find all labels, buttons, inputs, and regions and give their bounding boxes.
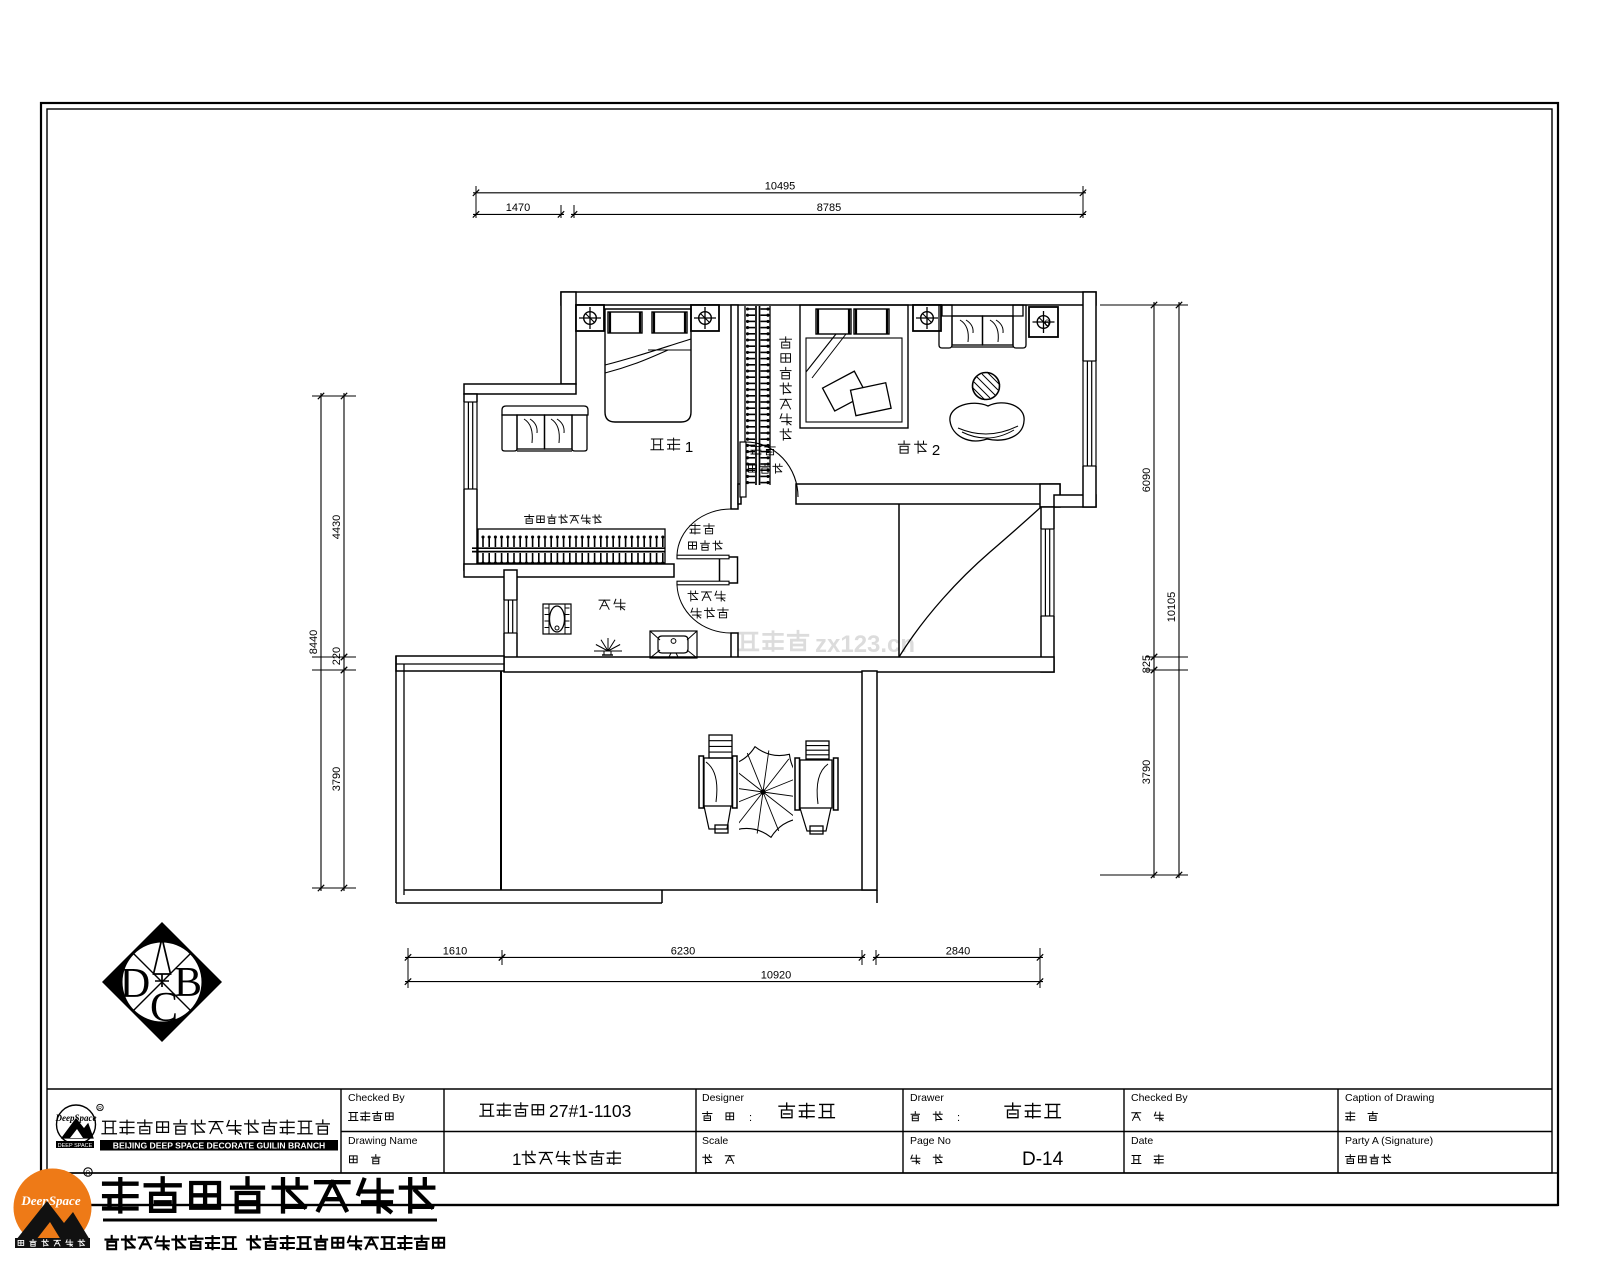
svg-text:6230: 6230 (671, 946, 695, 958)
svg-text:Scale: Scale (702, 1135, 728, 1147)
svg-text:3790: 3790 (1141, 760, 1153, 784)
svg-text:10920: 10920 (761, 970, 792, 982)
svg-text:1610: 1610 (443, 946, 467, 958)
svg-text:3790: 3790 (331, 767, 343, 791)
svg-text:1: 1 (512, 1150, 521, 1169)
svg-text:6090: 6090 (1141, 468, 1153, 492)
svg-text:1470: 1470 (506, 202, 530, 214)
svg-text:C: C (150, 985, 178, 1031)
svg-text:B: B (174, 960, 202, 1006)
svg-text:27#1-1103: 27#1-1103 (549, 1101, 631, 1121)
svg-text:8785: 8785 (817, 202, 841, 214)
svg-text:Caption of Drawing: Caption of Drawing (1345, 1092, 1434, 1104)
svg-text:Date: Date (1131, 1135, 1153, 1147)
svg-text:R: R (86, 1171, 91, 1177)
svg-text::: : (749, 1112, 752, 1124)
svg-text:Checked By: Checked By (348, 1092, 405, 1104)
svg-text:10495: 10495 (765, 181, 796, 193)
svg-text:10105: 10105 (1166, 592, 1178, 623)
svg-text:2840: 2840 (946, 946, 970, 958)
svg-text:Drawing Name: Drawing Name (348, 1135, 418, 1147)
svg-text:Checked By: Checked By (1131, 1092, 1188, 1104)
svg-text:1: 1 (685, 439, 693, 456)
svg-text:zx123.cn: zx123.cn (815, 631, 915, 658)
svg-text:Party A (Signature): Party A (Signature) (1345, 1135, 1433, 1147)
svg-text:DEEP SPACE: DEEP SPACE (58, 1143, 93, 1149)
svg-text:6: 6 (1044, 318, 1049, 328)
svg-text:220: 220 (331, 647, 343, 665)
svg-text:R: R (98, 1106, 102, 1112)
svg-text:D-14: D-14 (1022, 1149, 1064, 1170)
svg-text:Drawer: Drawer (910, 1092, 944, 1104)
svg-text:2: 2 (932, 442, 940, 459)
svg-text:Designer: Designer (702, 1092, 745, 1104)
svg-text:BEIJING DEEP SPACE DECORATE GU: BEIJING DEEP SPACE DECORATE GUILIN BRANC… (113, 1140, 325, 1150)
svg-text:DeepSpace: DeepSpace (55, 1113, 97, 1123)
svg-text:825: 825 (1141, 655, 1153, 673)
svg-text::: : (957, 1112, 960, 1124)
svg-text:4430: 4430 (331, 515, 343, 539)
svg-text:8440: 8440 (308, 630, 320, 654)
svg-text:Page No: Page No (910, 1135, 951, 1147)
svg-text:D: D (120, 961, 150, 1007)
